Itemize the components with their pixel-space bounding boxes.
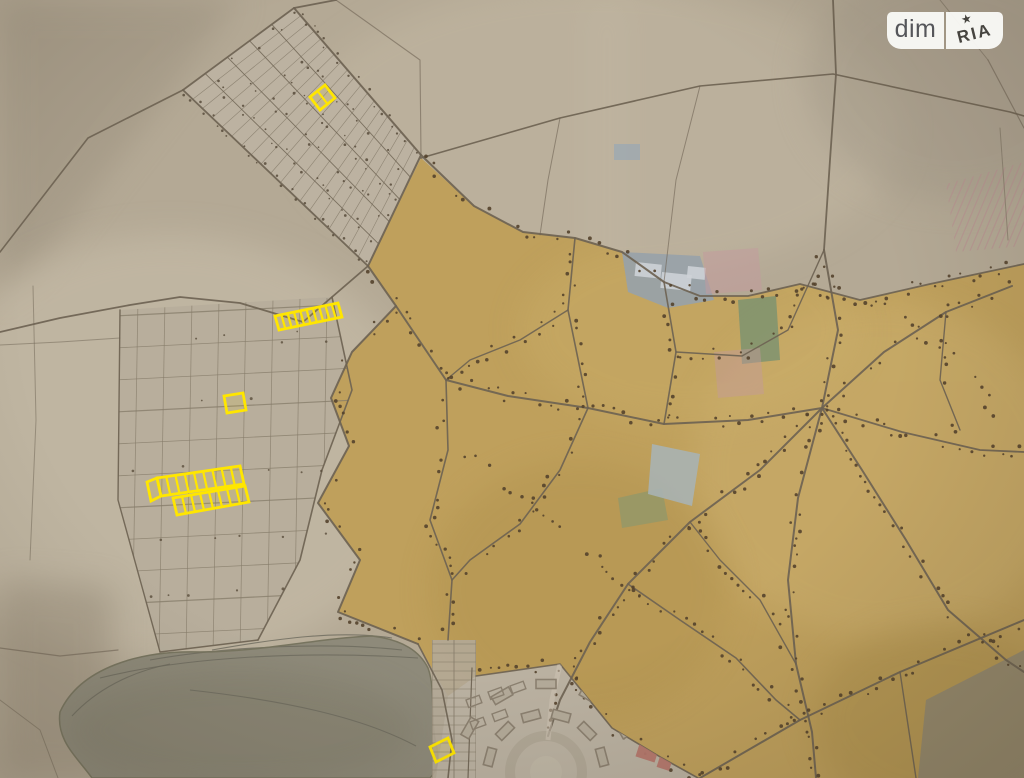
- map-photo: dim ★ RIA: [0, 0, 1024, 778]
- watermark-ria-label: RIA: [955, 20, 994, 48]
- highlighted-parcel-group-west: [147, 478, 161, 501]
- watermark-dim-logo: dim: [887, 12, 944, 49]
- map-canvas: [0, 0, 1024, 778]
- watermark: dim ★ RIA: [887, 12, 1003, 49]
- watermark-dim-label: dim: [895, 17, 937, 45]
- highlighted-parcel-small: [224, 393, 246, 413]
- watermark-ria-logo: ★ RIA: [946, 12, 1003, 49]
